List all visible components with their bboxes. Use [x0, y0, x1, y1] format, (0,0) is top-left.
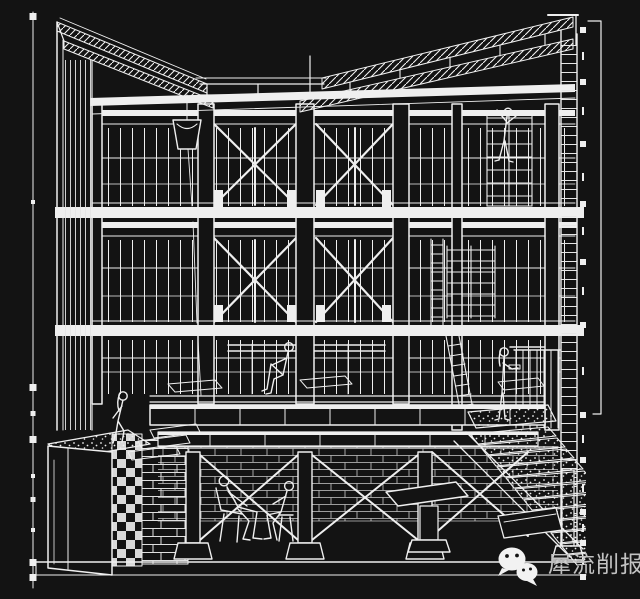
- right-dimension-line: [588, 21, 601, 414]
- left-wall: [57, 22, 92, 430]
- watermark-text: 犀流削报: [548, 554, 640, 577]
- wechat-icon: [492, 545, 544, 593]
- watermark: 犀流削报: [492, 545, 640, 595]
- storey-2-window-wall: [92, 222, 577, 322]
- building-section-drawing: [0, 0, 640, 599]
- storey-3-window-wall: [92, 110, 575, 206]
- left-dimension-line: [30, 12, 37, 588]
- roof-truss: [57, 15, 578, 114]
- drawing-canvas: 犀流削报: [0, 0, 640, 599]
